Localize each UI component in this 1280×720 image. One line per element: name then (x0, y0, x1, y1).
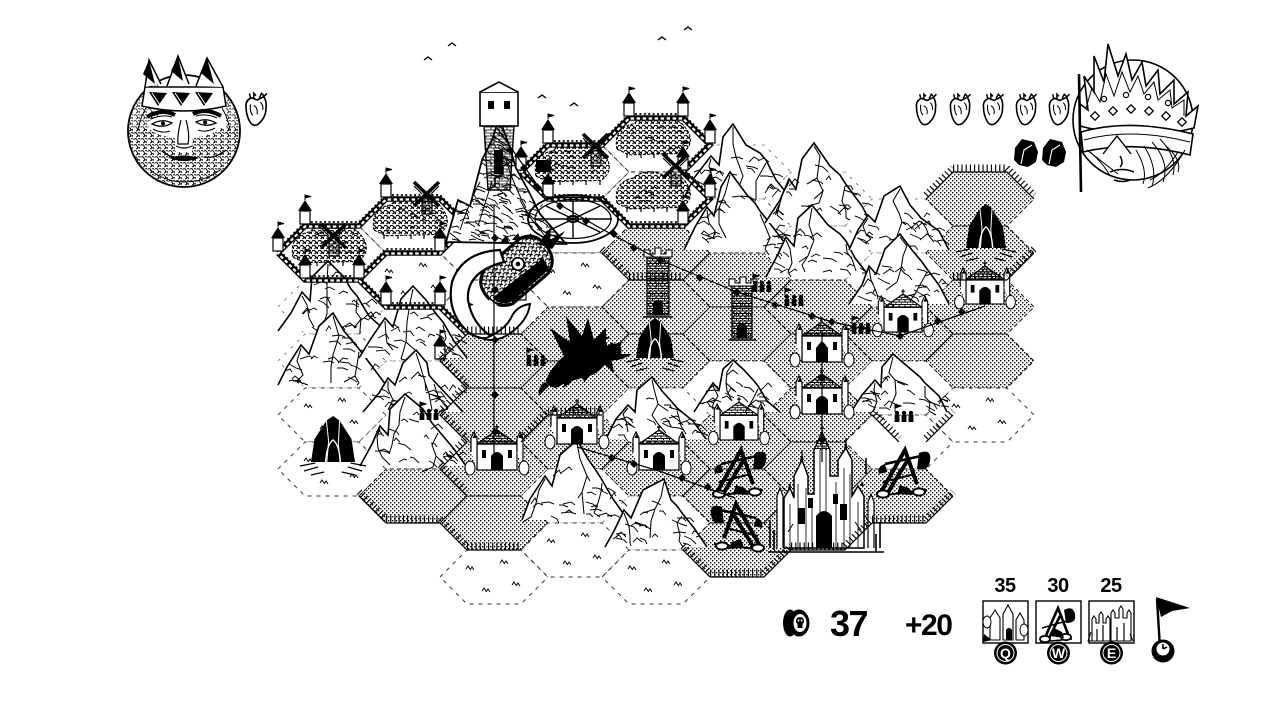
svg-text:37: 37 (830, 603, 868, 644)
svg-text:35: 35 (994, 575, 1016, 597)
svg-text:W: W (1052, 645, 1066, 661)
svg-text:30: 30 (1047, 575, 1069, 597)
svg-text:Q: Q (1000, 645, 1011, 661)
svg-text:+20: +20 (905, 609, 952, 642)
svg-text:25: 25 (1100, 575, 1122, 597)
svg-text:E: E (1107, 645, 1116, 661)
